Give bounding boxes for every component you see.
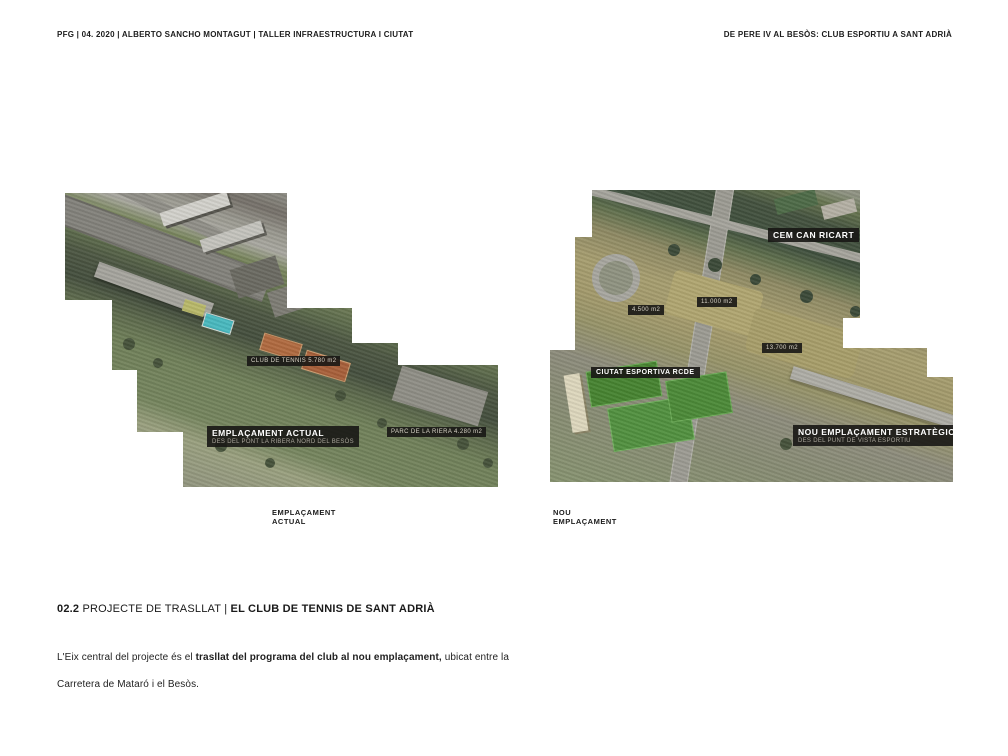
section-name: PROJECTE DE TRASLLAT bbox=[82, 603, 224, 615]
tree bbox=[123, 338, 135, 350]
label-subtitle: DES DEL PUNT DE VISTA ESPORTIU bbox=[798, 438, 953, 444]
label-title: NOU EMPLAÇAMENT ESTRATÈGIC bbox=[798, 427, 953, 437]
section-title: 02.2 PROJECTE DE TRASLLAT | EL CLUB DE T… bbox=[57, 603, 435, 615]
tree bbox=[457, 438, 469, 450]
tree bbox=[377, 418, 387, 428]
label-parc-de-la-riera-area: PARC DE LA RIERA 4.280 m2 bbox=[387, 427, 486, 437]
aerial-photo-current-site: CLUB DE TENNIS 5.780 m2 PARC DE LA RIERA… bbox=[65, 190, 498, 487]
tree bbox=[668, 244, 680, 256]
roundabout bbox=[592, 254, 640, 302]
caption-new-site: NOU EMPLAÇAMENT bbox=[553, 509, 617, 526]
section-subject: EL CLUB DE TENNIS DE SANT ADRIÀ bbox=[231, 603, 435, 615]
header-project-title: DE PERE IV AL BESÒS: CLUB ESPORTIU A SAN… bbox=[724, 30, 952, 39]
aerial-photo-new-site: CEM CAN RICART 4.500 m2 11.000 m2 13.700… bbox=[550, 188, 953, 482]
body-segment-bold: trasllat del programa del club al nou em… bbox=[196, 652, 442, 663]
section-number: 02.2 bbox=[57, 603, 82, 615]
tree bbox=[750, 274, 761, 285]
caption-line: EMPLAÇAMENT bbox=[553, 518, 617, 527]
caption-current-site: EMPLAÇAMENT ACTUAL bbox=[272, 509, 336, 526]
label-area-13700: 13.700 m2 bbox=[762, 343, 802, 353]
tree bbox=[800, 290, 813, 303]
tree bbox=[153, 358, 163, 368]
tree bbox=[850, 306, 861, 317]
portfolio-page: PFG | 04. 2020 | ALBERTO SANCHO MONTAGUT… bbox=[0, 0, 1008, 756]
label-title: EMPLAÇAMENT ACTUAL bbox=[212, 428, 354, 438]
label-nou-emplacament-estrategic: NOU EMPLAÇAMENT ESTRATÈGIC DES DEL PUNT … bbox=[793, 425, 953, 446]
body-segment: L'Eix central del projecte és el bbox=[57, 652, 196, 663]
label-title: CEM CAN RICART bbox=[773, 230, 854, 240]
header-author-line: PFG | 04. 2020 | ALBERTO SANCHO MONTAGUT… bbox=[57, 30, 413, 39]
caption-line: ACTUAL bbox=[272, 518, 336, 527]
label-club-de-tennis-area: CLUB DE TENNIS 5.780 m2 bbox=[247, 356, 340, 366]
label-area-11000: 11.000 m2 bbox=[697, 297, 737, 307]
label-ciutat-esportiva-rcde: CIUTAT ESPORTIVA RCDE bbox=[591, 367, 700, 378]
tree bbox=[483, 458, 493, 468]
tree bbox=[888, 320, 900, 332]
label-cem-can-ricart: CEM CAN RICART bbox=[768, 228, 859, 242]
tree bbox=[335, 390, 346, 401]
label-area-4500: 4.500 m2 bbox=[628, 305, 664, 315]
label-subtitle: DES DEL PONT LA RIBERA NORD DEL BESÒS bbox=[212, 439, 354, 445]
tree bbox=[780, 438, 792, 450]
label-title: CIUTAT ESPORTIVA RCDE bbox=[596, 369, 695, 376]
label-emplacament-actual: EMPLAÇAMENT ACTUAL DES DEL PONT LA RIBER… bbox=[207, 426, 359, 447]
body-paragraph: L'Eix central del projecte és el traslla… bbox=[57, 644, 517, 698]
tree bbox=[708, 258, 722, 272]
tree bbox=[265, 458, 275, 468]
